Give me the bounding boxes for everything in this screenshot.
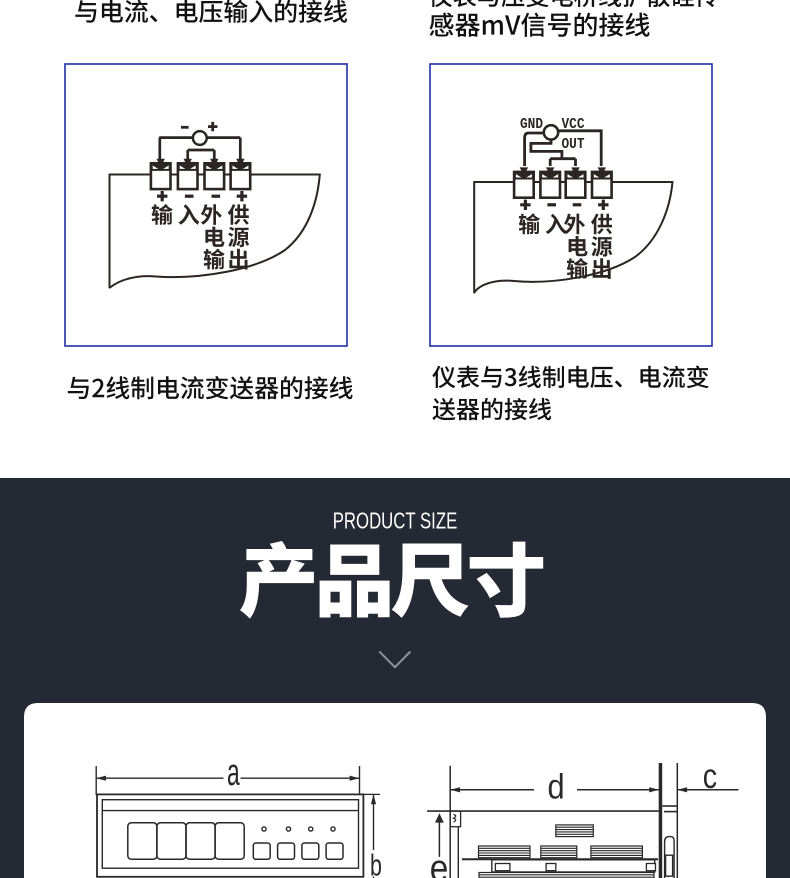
svg-text:b: b bbox=[370, 848, 382, 878]
svg-text:OUT: OUT bbox=[562, 136, 585, 153]
svg-text:VCC: VCC bbox=[562, 116, 585, 133]
svg-text:e: e bbox=[430, 847, 449, 878]
svg-text:PRODUCT SIZE: PRODUCT SIZE bbox=[333, 508, 458, 534]
svg-text:d: d bbox=[548, 766, 565, 805]
svg-text:a: a bbox=[227, 751, 240, 793]
svg-text:c: c bbox=[703, 756, 717, 795]
svg-text:GND: GND bbox=[520, 116, 543, 133]
